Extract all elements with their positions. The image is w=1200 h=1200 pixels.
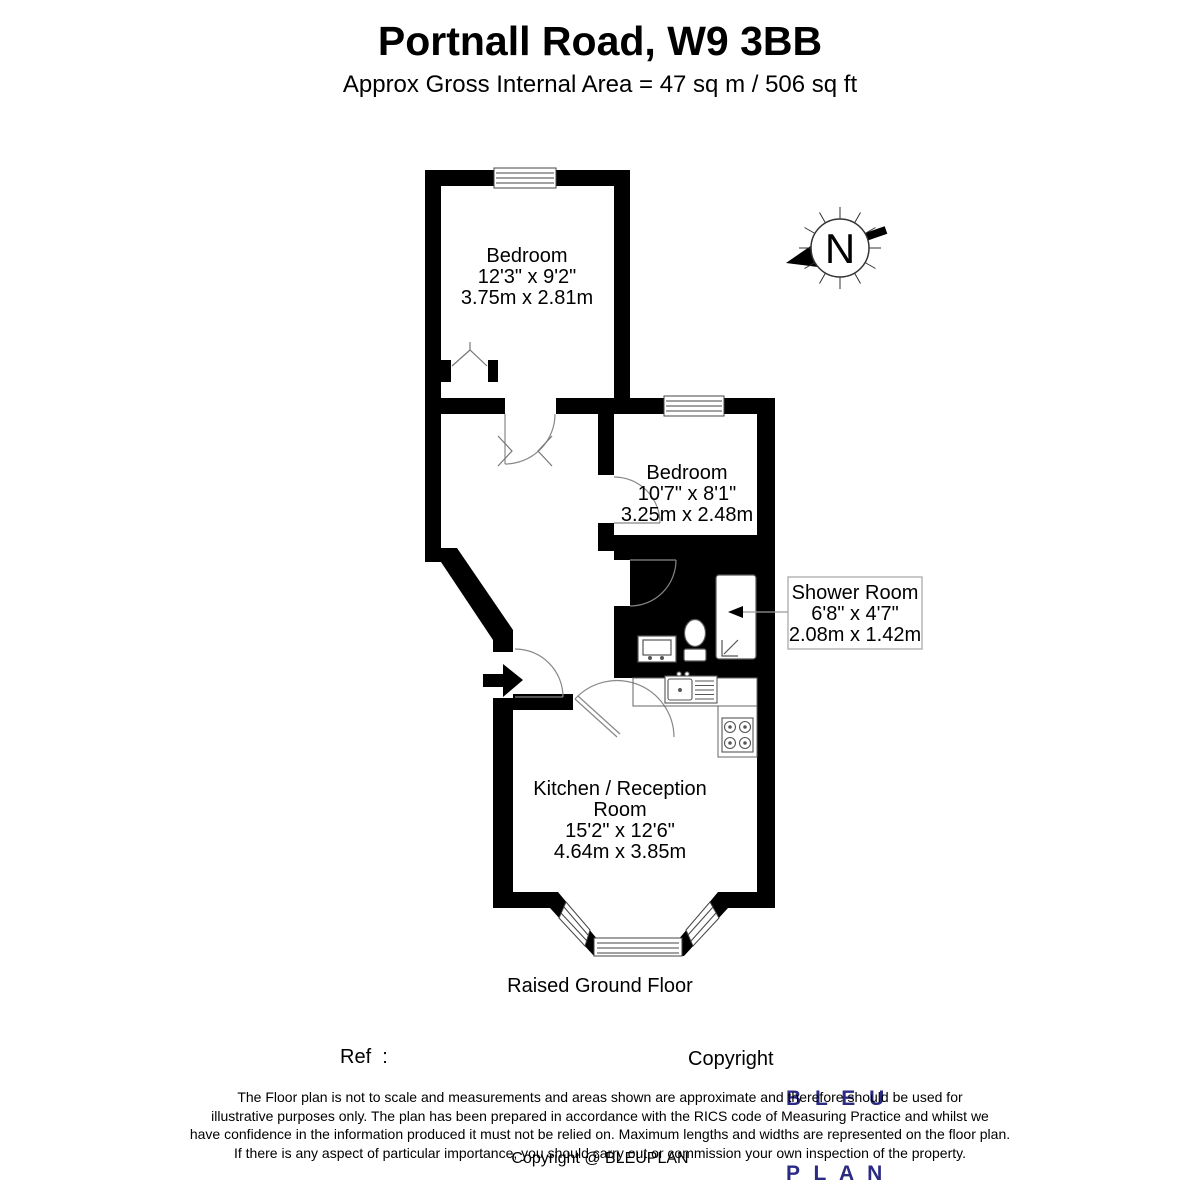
disclaimer-line: have confidence in the information produ… (100, 1125, 1100, 1144)
floor-name: Raised Ground Floor (0, 975, 1200, 998)
shower-tray-icon (716, 575, 756, 659)
shower-room-name: Shower Room (792, 582, 919, 604)
floor-plan: Shower Room 6'8" x 4'7" 2.08m x 1.42m N … (0, 0, 1200, 1200)
shower-room-imperial: 6'8" x 4'7" (811, 603, 898, 625)
bedroom-1-window (494, 168, 556, 188)
bedroom-2-metric: 3.25m x 2.48m (621, 504, 753, 526)
vanity-sink-icon (638, 636, 676, 662)
kitchen-name-line1: Kitchen / Reception (533, 778, 706, 800)
kitchen-doorway (573, 678, 614, 710)
north-label: N (825, 225, 855, 272)
kitchen-imperial: 15'2" x 12'6" (565, 820, 675, 842)
ref-label: Ref : (340, 1046, 388, 1069)
bedroom-2-name: Bedroom (646, 462, 727, 484)
bedroom-1-imperial: 12'3" x 9'2" (478, 266, 577, 288)
disclaimer-line: The Floor plan is not to scale and measu… (100, 1088, 1100, 1107)
kitchen-name-line2: Room (593, 799, 646, 821)
copyright-bottom: Copyright @ BLEUPLAN (0, 1150, 1200, 1168)
bedroom-1-metric: 3.75m x 2.81m (461, 287, 593, 309)
copyright-label: Copyright (688, 1048, 774, 1071)
bay-window-center (594, 938, 682, 956)
toilet-icon (684, 620, 706, 662)
hallway-interior (441, 414, 614, 694)
shower-room-metric: 2.08m x 1.42m (789, 624, 921, 646)
bedroom-2-imperial: 10'7" x 8'1" (638, 483, 737, 505)
north-compass-icon: N (786, 207, 886, 289)
bedroom-1-name: Bedroom (486, 245, 567, 267)
kitchen-sink-icon (665, 672, 717, 703)
bedroom-2-window (664, 396, 724, 416)
kitchen-metric: 4.64m x 3.85m (554, 841, 686, 863)
floorplan-page: Portnall Road, W9 3BB Approx Gross Inter… (0, 0, 1200, 1200)
disclaimer-line: illustrative purposes only. The plan has… (100, 1107, 1100, 1126)
